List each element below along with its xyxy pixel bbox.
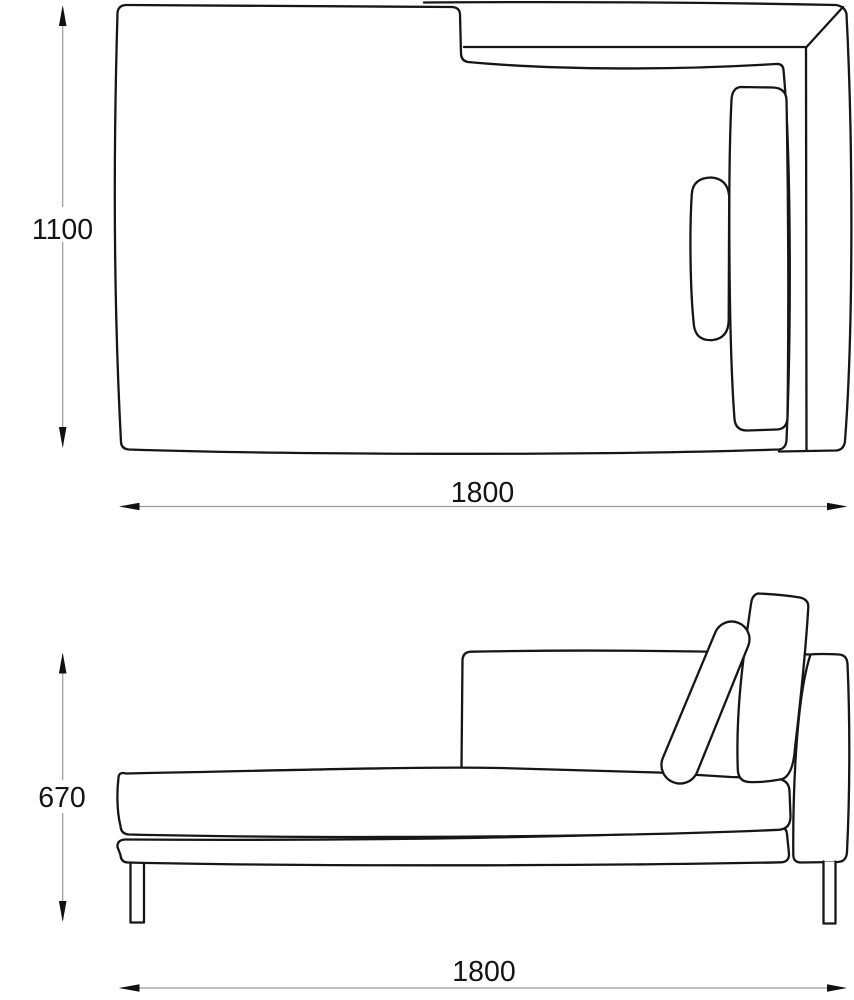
svg-text:1800: 1800 <box>452 956 515 988</box>
svg-text:1100: 1100 <box>32 214 93 246</box>
svg-text:670: 670 <box>38 782 86 814</box>
svg-text:1800: 1800 <box>451 477 514 509</box>
